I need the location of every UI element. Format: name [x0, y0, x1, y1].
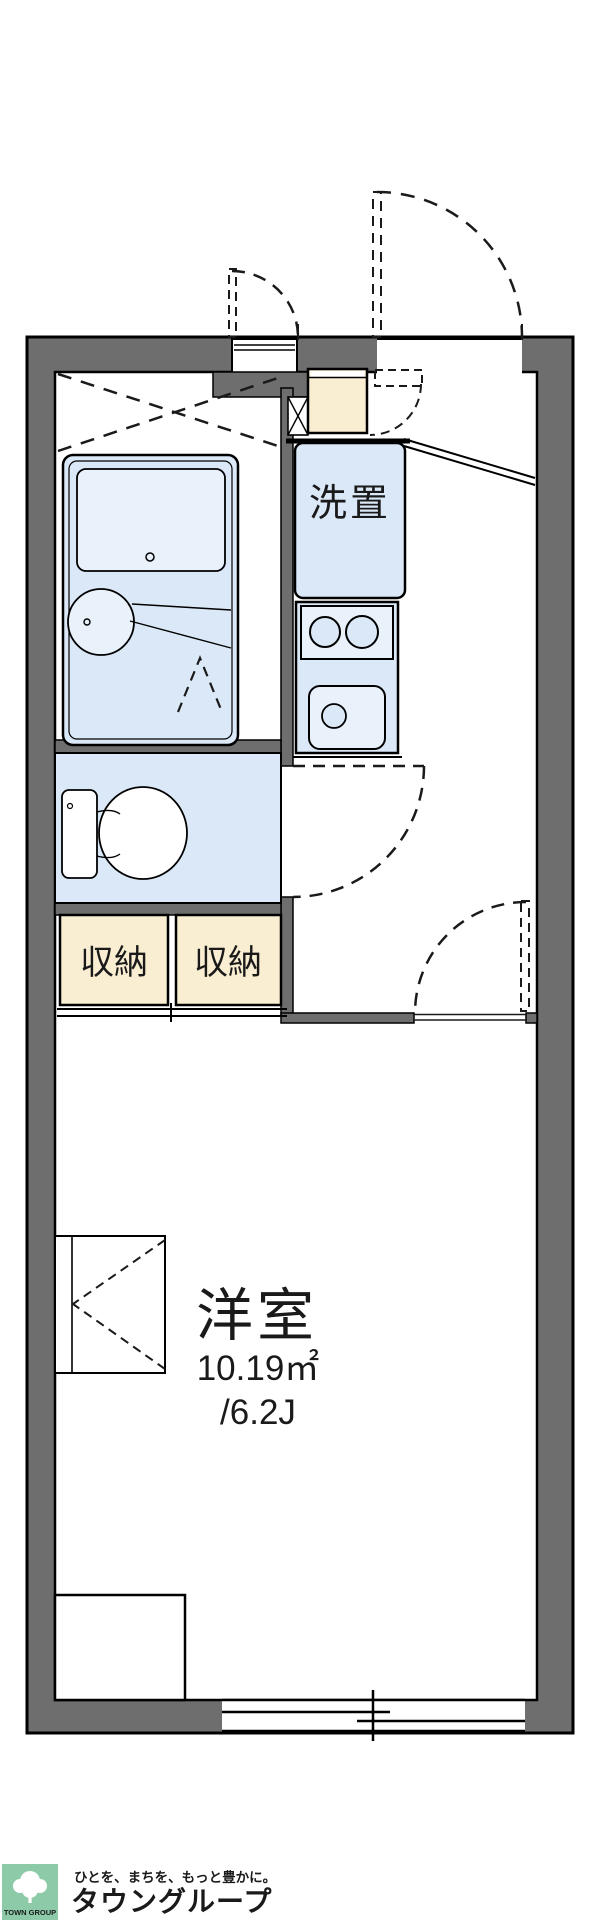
- water-heater-box: [308, 369, 367, 433]
- footer-tagline: ひとを、まちを、もっと豊かに。: [74, 1869, 276, 1885]
- kitchen: [293, 602, 402, 757]
- floorplan-drawing: 収納 収納 洗置: [0, 0, 604, 1920]
- burner-icon: [346, 616, 378, 648]
- toilet-bowl: [99, 787, 187, 879]
- toilet-icon: [62, 787, 187, 879]
- divider-wall-upper: [281, 388, 293, 766]
- toilet-tank: [62, 790, 97, 878]
- main-room-area-tatami: /6.2J: [220, 1393, 296, 1432]
- room-counter-box: [55, 1595, 185, 1700]
- entrance-door-arc: [377, 192, 522, 337]
- wall-stub-room-door: [526, 1013, 537, 1023]
- entrance-door-leaf: [373, 192, 381, 337]
- footer-logo: TOWN GROUP ひとを、まちを、もっと豊かに。 タウングループ: [2, 1864, 276, 1920]
- bathtub: [63, 455, 238, 745]
- exterior-door-swings: [229, 192, 522, 340]
- bay-window-symbol: [55, 1236, 165, 1373]
- wall-toilet-storage: [55, 903, 281, 915]
- tub-basin: [77, 469, 225, 571]
- washer-space-label: 洗置: [309, 483, 391, 525]
- storage-left-label: 収納: [80, 944, 148, 982]
- logo-square-label: TOWN GROUP: [4, 1908, 56, 1917]
- sink-box: [309, 686, 385, 749]
- pipe-space: [288, 397, 308, 435]
- toilet-room: [55, 753, 281, 903]
- main-room-area-sqm: 10.19㎡: [197, 1348, 320, 1388]
- water-heater-top-band: [311, 371, 365, 377]
- storage-right-label: 収納: [194, 944, 262, 982]
- service-door-arc: [232, 271, 298, 337]
- service-door-leaf: [229, 269, 236, 337]
- water-heater: [308, 369, 367, 433]
- washbasin-icon: [68, 589, 134, 655]
- footer-brand: タウングループ: [71, 1886, 272, 1917]
- main-room-label: 洋室: [196, 1284, 318, 1348]
- sink-drain-icon: [322, 704, 346, 728]
- divider-wall-lower: [281, 897, 293, 1015]
- washer-space: 洗置: [295, 443, 405, 598]
- floorplan-page: 収納 収納 洗置: [0, 0, 604, 1920]
- burner-icon: [310, 617, 340, 647]
- wall-hall-room: [281, 1013, 414, 1023]
- entrance-opening: [377, 339, 522, 374]
